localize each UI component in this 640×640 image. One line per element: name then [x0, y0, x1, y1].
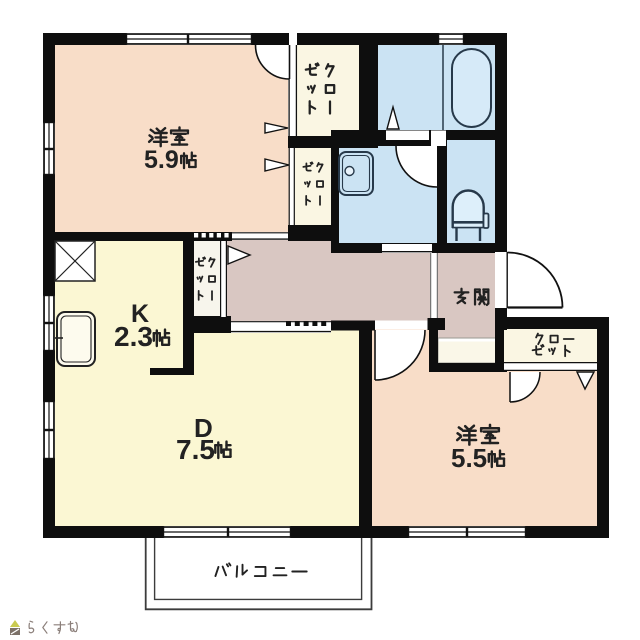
svg-text:5.9: 5.9 — [144, 146, 179, 174]
svg-text:7.5: 7.5 — [176, 434, 215, 465]
svg-text:2.3: 2.3 — [114, 321, 153, 352]
svg-text:5.5: 5.5 — [451, 443, 487, 473]
